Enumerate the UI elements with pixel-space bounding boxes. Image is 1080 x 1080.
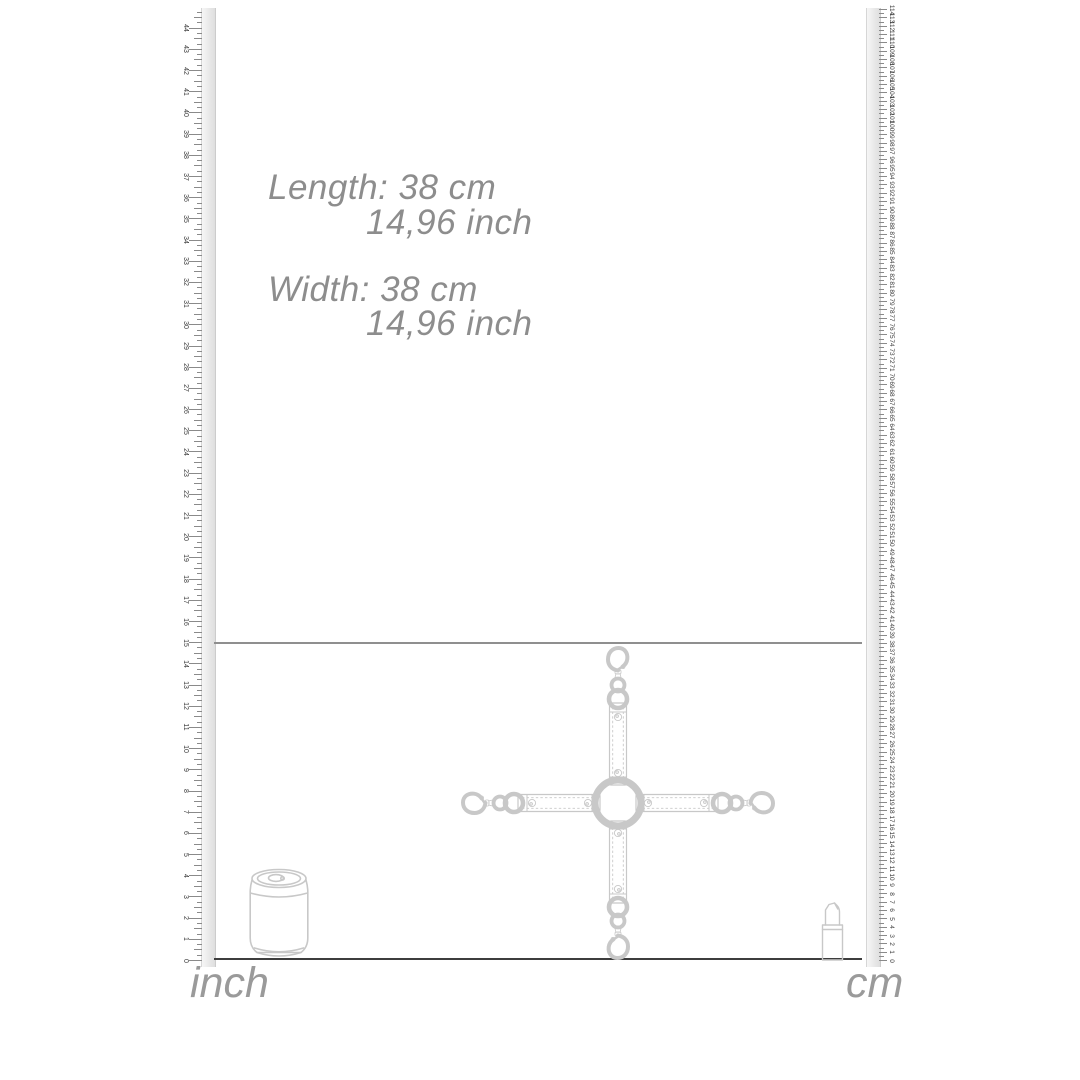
ruler-tick: [879, 88, 884, 89]
ruler-tick: [879, 455, 884, 456]
ruler-tick: [879, 735, 887, 736]
ruler-tick-label: 66: [887, 403, 895, 417]
ruler-tick-label: 30: [887, 703, 895, 717]
ruler-tick: [197, 181, 203, 182]
ruler-tick: [194, 780, 202, 781]
ruler-tick: [194, 356, 202, 357]
ruler-tick: [189, 324, 202, 325]
ruler-tick: [879, 631, 884, 632]
ruler-tick: [197, 298, 203, 299]
ruler-tick: [879, 772, 884, 773]
ruler-tick-label: 33: [887, 678, 895, 692]
ruler-tick-label: 21: [181, 509, 189, 523]
ruler-tick-label: 25: [887, 745, 895, 759]
ruler-tick: [189, 875, 202, 876]
ruler-tick-label: 90: [887, 203, 895, 217]
ruler-tick: [879, 485, 887, 486]
ruler-tick: [879, 906, 884, 907]
ruler-tick-label: 43: [181, 42, 189, 56]
ruler-tick: [879, 685, 887, 686]
ruler-tick-label: 39: [887, 628, 895, 642]
ruler-tick-label: 37: [887, 645, 895, 659]
ruler-tick: [189, 451, 202, 452]
ruler-tick: [189, 367, 202, 368]
ruler-tick: [879, 443, 887, 444]
ruler-tick: [879, 589, 884, 590]
ruler-tick: [197, 690, 203, 691]
ruler-tick: [879, 768, 887, 769]
ruler-tick: [197, 383, 203, 384]
ruler-tick: [194, 695, 202, 696]
ruler-tick-label: 3: [181, 890, 189, 904]
ruler-tick-label: 1: [181, 932, 189, 946]
ruler-tick: [879, 430, 884, 431]
ruler-tick: [879, 230, 884, 231]
ruler-tick: [879, 593, 887, 594]
ruler-tick: [197, 86, 203, 87]
ruler-tick: [879, 872, 884, 873]
ruler-tick: [194, 271, 202, 272]
arm-top: [608, 648, 627, 785]
ruler-tick: [197, 414, 203, 415]
cm-ruler-strip: [866, 8, 881, 967]
ruler-tick: [879, 739, 884, 740]
ruler-tick: [879, 747, 884, 748]
ruler-tick: [879, 105, 884, 106]
ruler-tick-label: 3: [887, 929, 895, 943]
ruler-tick-label: 79: [887, 295, 895, 309]
ruler-tick: [194, 399, 202, 400]
ruler-tick: [194, 17, 202, 18]
ruler-tick-label: 104: [887, 86, 895, 100]
ruler-tick: [879, 835, 887, 836]
ruler-tick: [197, 563, 203, 564]
ruler-tick: [197, 393, 203, 394]
ruler-tick: [879, 376, 887, 377]
ruler-tick: [879, 218, 887, 219]
ruler-tick-label: 70: [887, 370, 895, 384]
ruler-tick: [197, 361, 203, 362]
ruler-tick-label: 29: [887, 712, 895, 726]
ruler-tick: [197, 330, 203, 331]
ruler-tick: [194, 59, 202, 60]
ruler-tick: [879, 176, 887, 177]
ruler-tick-label: 10: [181, 742, 189, 756]
ruler-tick: [879, 526, 887, 527]
ruler-tick: [879, 622, 884, 623]
ruler-tick: [197, 912, 203, 913]
ruler-tick-label: 13: [181, 678, 189, 692]
ruler-tick: [197, 213, 203, 214]
ruler-tick: [879, 130, 884, 131]
ruler-tick-label: 114: [887, 3, 895, 17]
ruler-tick: [197, 785, 203, 786]
ruler-tick: [189, 579, 202, 580]
ruler-tick: [879, 551, 887, 552]
ruler-tick: [879, 618, 887, 619]
ruler-tick-label: 99: [887, 128, 895, 142]
ruler-tick: [879, 493, 887, 494]
ruler-tick-label: 12: [181, 699, 189, 713]
ruler-tick: [189, 91, 202, 92]
ruler-tick: [197, 838, 203, 839]
ruler-tick: [879, 72, 884, 73]
ruler-tick-label: 95: [887, 161, 895, 175]
ruler-tick: [879, 38, 884, 39]
ruler-tick: [879, 606, 884, 607]
ruler-tick-label: 40: [181, 106, 189, 120]
ruler-tick: [879, 384, 887, 385]
ruler-tick: [189, 663, 202, 664]
ruler-tick: [189, 261, 202, 262]
ruler-tick: [189, 494, 202, 495]
ruler-tick: [879, 802, 887, 803]
ruler-tick: [194, 568, 202, 569]
width-annotation: Width: 38 cm: [268, 272, 478, 308]
ruler-tick: [879, 334, 887, 335]
ruler-tick-label: 16: [181, 615, 189, 629]
ruler-tick: [879, 689, 884, 690]
length-label: Length:: [268, 168, 388, 207]
ruler-tick: [879, 368, 887, 369]
ruler-tick: [189, 642, 202, 643]
ruler-tick-label: 54: [887, 503, 895, 517]
ruler-tick: [879, 76, 887, 77]
ruler-tick: [879, 647, 884, 648]
ruler-tick: [879, 626, 887, 627]
ruler-tick-label: 16: [887, 820, 895, 834]
ruler-tick: [197, 944, 203, 945]
ruler-tick-label: 28: [887, 720, 895, 734]
ruler-tick: [879, 247, 884, 248]
ruler-tick: [197, 817, 203, 818]
ruler-tick: [197, 700, 203, 701]
ruler-tick: [879, 693, 887, 694]
ruler-tick: [879, 401, 887, 402]
ruler-tick: [879, 935, 887, 936]
ruler-tick: [194, 229, 202, 230]
ruler-tick: [879, 547, 884, 548]
ruler-tick: [879, 564, 884, 565]
ruler-tick: [879, 51, 887, 52]
ruler-tick: [194, 822, 202, 823]
ruler-tick: [879, 731, 884, 732]
ruler-tick: [879, 289, 884, 290]
ruler-tick-label: 4: [181, 869, 189, 883]
ruler-tick: [194, 441, 202, 442]
ruler-tick: [189, 430, 202, 431]
ruler-tick: [879, 222, 884, 223]
ruler-tick-label: 17: [887, 812, 895, 826]
ruler-tick: [197, 351, 203, 352]
ruler-tick-label: 77: [887, 311, 895, 325]
ruler-tick: [879, 614, 884, 615]
ruler-tick-label: 67: [887, 395, 895, 409]
ruler-tick-label: 38: [887, 637, 895, 651]
ruler-tick: [879, 902, 887, 903]
ruler-tick-label: 93: [887, 178, 895, 192]
ruler-tick: [189, 833, 202, 834]
ruler-tick: [879, 80, 884, 81]
inch-ruler-strip: [201, 8, 216, 967]
ruler-tick: [197, 923, 203, 924]
ruler-tick-label: 47: [887, 561, 895, 575]
ruler-tick-label: 111: [887, 28, 895, 42]
ruler-tick-label: 40: [887, 620, 895, 634]
ruler-tick-label: 44: [181, 21, 189, 35]
ruler-tick-label: 29: [181, 339, 189, 353]
ruler-tick: [197, 722, 203, 723]
ruler-tick-label: 64: [887, 420, 895, 434]
ruler-tick: [194, 293, 202, 294]
ruler-tick: [189, 346, 202, 347]
ruler-tick: [194, 483, 202, 484]
ruler-tick: [879, 364, 884, 365]
ruler-tick: [879, 560, 887, 561]
ruler-tick: [189, 134, 202, 135]
ruler-tick: [189, 536, 202, 537]
ruler-tick-label: 8: [887, 887, 895, 901]
ruler-tick: [879, 956, 884, 957]
ruler-tick-label: 36: [887, 653, 895, 667]
ruler-tick-label: 32: [181, 275, 189, 289]
ruler-tick: [197, 499, 203, 500]
ruler-tick-label: 9: [887, 878, 895, 892]
ruler-tick-label: 36: [181, 191, 189, 205]
ruler-tick: [194, 165, 202, 166]
length-imperial: 14,96 inch: [366, 205, 533, 241]
ruler-tick-label: 8: [181, 784, 189, 798]
ruler-tick-label: 57: [887, 478, 895, 492]
ruler-tick: [194, 377, 202, 378]
ruler-tick-label: 69: [887, 378, 895, 392]
ruler-tick: [879, 576, 887, 577]
ruler-tick: [879, 889, 884, 890]
ruler-tick-label: 9: [181, 763, 189, 777]
ruler-tick: [189, 282, 202, 283]
ruler-tick-label: 86: [887, 236, 895, 250]
ruler-tick: [879, 610, 887, 611]
ruler-tick-label: 46: [887, 570, 895, 584]
ruler-tick: [879, 818, 887, 819]
ruler-tick-label: 74: [887, 336, 895, 350]
ruler-tick: [879, 330, 884, 331]
ruler-tick-label: 109: [887, 44, 895, 58]
ruler-tick: [194, 949, 202, 950]
ruler-tick: [879, 714, 884, 715]
ruler-tick: [189, 685, 202, 686]
ruler-tick: [879, 639, 884, 640]
ruler-tick: [879, 518, 887, 519]
ruler-tick: [197, 489, 203, 490]
ruler-tick: [197, 647, 203, 648]
ruler-tick: [879, 205, 884, 206]
ruler-tick: [194, 144, 202, 145]
ruler-tick-label: 13: [887, 845, 895, 859]
arm-right: [636, 793, 773, 812]
ruler-tick: [879, 326, 887, 327]
ruler-tick-label: 45: [887, 578, 895, 592]
ruler-tick: [879, 259, 887, 260]
ruler-tick: [879, 464, 884, 465]
ruler-tick: [197, 107, 203, 108]
ruler-tick: [197, 796, 203, 797]
ruler-tick: [197, 266, 203, 267]
ruler-tick-label: 23: [181, 466, 189, 480]
ruler-tick: [879, 643, 887, 644]
ruler-tick: [879, 172, 884, 173]
ruler-tick: [197, 616, 203, 617]
width-imperial: 14,96 inch: [366, 306, 533, 342]
ruler-tick-label: 31: [887, 695, 895, 709]
ruler-tick: [879, 856, 884, 857]
ruler-tick: [879, 393, 887, 394]
ruler-tick-label: 10: [887, 870, 895, 884]
ruler-tick: [879, 134, 887, 135]
ruler-tick: [879, 238, 884, 239]
ruler-tick: [879, 397, 884, 398]
ruler-tick: [879, 806, 884, 807]
ruler-tick: [879, 255, 884, 256]
ruler-tick: [879, 472, 884, 473]
ruler-tick: [189, 218, 202, 219]
ruler-tick: [197, 308, 203, 309]
ruler-tick: [189, 303, 202, 304]
ruler-tick: [194, 674, 202, 675]
ruler-tick: [197, 743, 203, 744]
ruler-tick: [879, 297, 884, 298]
ruler-tick: [197, 849, 203, 850]
ruler-tick: [879, 168, 887, 169]
ruler-tick-label: 11: [181, 720, 189, 734]
ruler-tick: [879, 923, 884, 924]
ruler-tick: [197, 446, 203, 447]
ruler-tick-label: 18: [887, 803, 895, 817]
ruler-tick-label: 65: [887, 411, 895, 425]
ruler-tick: [879, 405, 884, 406]
ruler-tick: [879, 201, 887, 202]
ruler-tick: [189, 727, 202, 728]
ruler-tick-label: 82: [887, 270, 895, 284]
ruler-tick: [879, 414, 884, 415]
ruler-tick: [197, 436, 203, 437]
ruler-tick: [197, 33, 203, 34]
ruler-tick: [879, 668, 887, 669]
ruler-tick: [879, 701, 887, 702]
ruler-tick-label: 27: [181, 381, 189, 395]
ruler-tick: [879, 510, 887, 511]
arm-left: [463, 794, 600, 813]
ruler-tick: [879, 193, 887, 194]
ruler-tick: [194, 907, 202, 908]
ruler-tick: [879, 706, 884, 707]
ruler-tick-label: 106: [887, 69, 895, 83]
ruler-tick: [197, 870, 203, 871]
ruler-tick: [879, 585, 887, 586]
ruler-tick: [879, 159, 887, 160]
ruler-tick: [879, 726, 887, 727]
ruler-tick: [879, 877, 887, 878]
ruler-tick: [879, 468, 887, 469]
ruler-tick-label: 24: [181, 445, 189, 459]
ruler-tick: [189, 918, 202, 919]
ruler-tick: [197, 467, 203, 468]
ruler-tick-label: 38: [181, 148, 189, 162]
ruler-tick: [879, 489, 884, 490]
ruler-tick: [879, 151, 887, 152]
ruler-tick-label: 75: [887, 328, 895, 342]
ruler-tick: [879, 118, 887, 119]
ruler-tick: [189, 769, 202, 770]
ruler-tick: [194, 208, 202, 209]
ruler-tick: [879, 101, 887, 102]
ruler-tick: [879, 272, 884, 273]
ruler-tick: [194, 314, 202, 315]
ruler-tick: [879, 30, 884, 31]
ruler-tick-label: 100: [887, 119, 895, 133]
ruler-tick: [194, 102, 202, 103]
ruler-tick-label: 15: [887, 828, 895, 842]
ruler-tick-label: 44: [887, 587, 895, 601]
ruler-tick: [197, 520, 203, 521]
ruler-tick: [197, 372, 203, 373]
ruler-tick: [197, 859, 203, 860]
ruler-tick: [197, 753, 203, 754]
ruler-tick: [879, 893, 887, 894]
ruler-tick-label: 113: [887, 11, 895, 25]
ruler-tick-label: 4: [887, 920, 895, 934]
ruler-tick: [879, 42, 887, 43]
ruler-tick: [879, 760, 887, 761]
ruler-tick: [879, 234, 887, 235]
ruler-tick: [197, 881, 203, 882]
ruler-tick: [879, 864, 884, 865]
ruler-tick: [879, 664, 884, 665]
ruler-tick: [189, 621, 202, 622]
ruler-tick-label: 5: [181, 848, 189, 862]
ruler-tick: [879, 535, 887, 536]
ruler-tick: [197, 22, 203, 23]
ruler-tick: [197, 934, 203, 935]
ruler-tick: [879, 530, 884, 531]
ruler-tick: [879, 22, 884, 23]
ruler-tick: [879, 831, 884, 832]
ruler-tick: [197, 97, 203, 98]
ruler-tick: [879, 764, 884, 765]
ruler-tick: [879, 67, 887, 68]
ruler-tick: [197, 171, 203, 172]
ruler-tick: [197, 404, 203, 405]
ruler-tick: [879, 409, 887, 410]
ruler-tick: [189, 896, 202, 897]
ruler-tick: [197, 139, 203, 140]
ruler-tick: [194, 610, 202, 611]
ruler-tick-label: 101: [887, 111, 895, 125]
ruler-tick-label: 112: [887, 19, 895, 33]
ruler-tick: [879, 435, 887, 436]
ruler-tick: [197, 669, 203, 670]
ruler-tick-label: 0: [181, 954, 189, 968]
ruler-tick-label: 42: [181, 64, 189, 78]
ruler-tick: [189, 600, 202, 601]
lipstick-outline: [819, 901, 846, 961]
ruler-tick: [197, 287, 203, 288]
ruler-tick-label: 33: [181, 254, 189, 268]
ruler-tick-label: 107: [887, 61, 895, 75]
ruler-tick: [879, 952, 887, 953]
ruler-tick-label: 97: [887, 144, 895, 158]
ruler-tick-label: 92: [887, 186, 895, 200]
